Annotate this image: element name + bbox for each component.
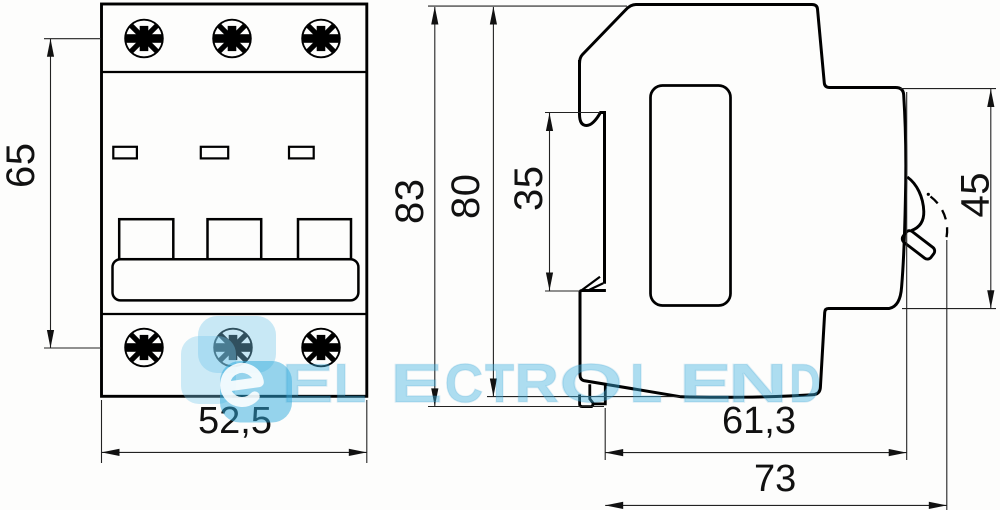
svg-text:E: E — [679, 353, 731, 414]
svg-text:C: C — [445, 353, 484, 414]
svg-text:E: E — [281, 353, 333, 414]
svg-text:N: N — [728, 353, 788, 414]
svg-text:65: 65 — [0, 143, 43, 189]
svg-text:73: 73 — [754, 458, 796, 500]
svg-text:35: 35 — [507, 166, 551, 212]
svg-text:O: O — [559, 352, 623, 414]
svg-text:80: 80 — [444, 174, 488, 220]
svg-text:L: L — [334, 353, 366, 414]
svg-text:45: 45 — [954, 172, 998, 218]
svg-text:83: 83 — [388, 179, 432, 225]
svg-text:E: E — [390, 353, 442, 414]
svg-text:L: L — [630, 353, 662, 414]
svg-text:T: T — [485, 352, 514, 414]
svg-text:D: D — [789, 353, 820, 414]
svg-text:R: R — [514, 353, 559, 414]
